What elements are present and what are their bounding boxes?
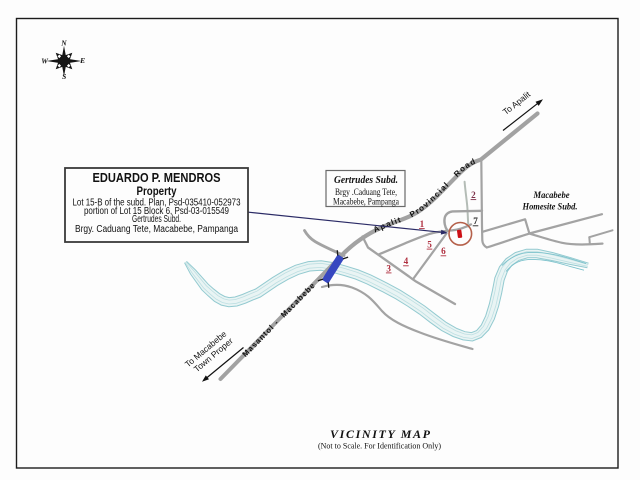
svg-text:To Apalit: To Apalit — [501, 89, 533, 117]
svg-text:Gertrudes Subd.: Gertrudes Subd. — [334, 174, 398, 186]
svg-text:N: N — [60, 38, 67, 47]
svg-text:Brgy. Caduang Tete, Macabebe,: Brgy. Caduang Tete, Macabebe, Pampanga — [75, 224, 238, 235]
svg-text:5: 5 — [427, 240, 432, 250]
svg-text:2: 2 — [471, 190, 476, 200]
svg-text:(Not to Scale. For Identificat: (Not to Scale. For Identification Only) — [318, 441, 441, 451]
svg-text:4: 4 — [404, 256, 409, 266]
svg-text:Brgy .Caduang Tete,: Brgy .Caduang Tete, — [335, 187, 397, 197]
svg-text:7: 7 — [473, 216, 478, 226]
svg-text:E: E — [79, 56, 85, 65]
svg-text:EDUARDO P. MENDROS: EDUARDO P. MENDROS — [93, 170, 221, 185]
svg-text:S: S — [62, 72, 66, 81]
svg-text:6: 6 — [441, 246, 446, 256]
svg-text:1: 1 — [420, 219, 425, 229]
svg-text:VICINITY MAP: VICINITY MAP — [330, 427, 431, 441]
svg-text:Homesite Subd.: Homesite Subd. — [522, 202, 578, 212]
svg-text:Macabebe: Macabebe — [533, 191, 571, 201]
svg-text:3: 3 — [386, 263, 391, 273]
svg-text:Macabebe, Pampanga: Macabebe, Pampanga — [333, 196, 399, 206]
